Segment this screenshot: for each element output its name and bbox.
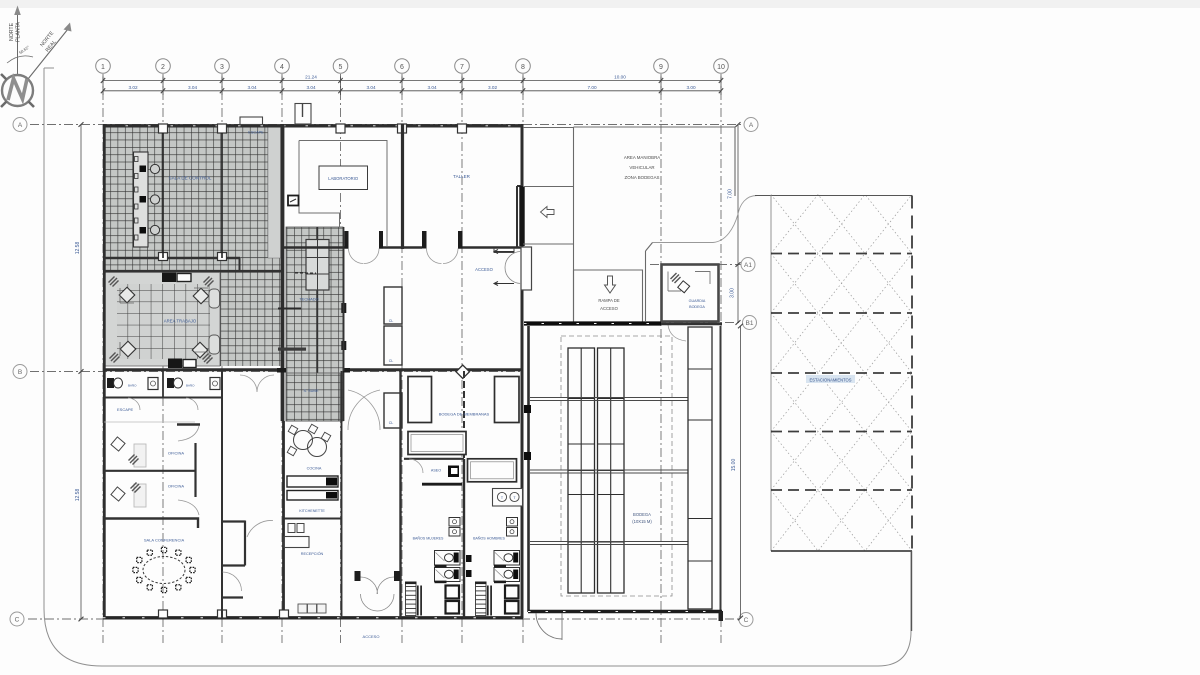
- svg-text:BODEGA: BODEGA: [633, 512, 651, 517]
- svg-text:ASEO: ASEO: [431, 469, 441, 473]
- svg-text:RECEPCIÓN: RECEPCIÓN: [301, 551, 324, 556]
- svg-text:NORTE: NORTE: [9, 22, 15, 41]
- svg-text:5: 5: [339, 64, 343, 71]
- svg-text:ESCAPE: ESCAPE: [117, 407, 134, 412]
- svg-text:3.04: 3.04: [306, 85, 316, 90]
- svg-text:CL: CL: [389, 319, 394, 323]
- svg-text:12.58: 12.58: [75, 242, 81, 255]
- svg-text:3.04: 3.04: [188, 85, 198, 90]
- svg-text:ESTACIONAMIENTOS: ESTACIONAMIENTOS: [810, 377, 852, 382]
- svg-text:BAÑO: BAÑO: [186, 383, 195, 388]
- svg-text:S. SUBE: S. SUBE: [304, 389, 319, 393]
- svg-text:BAÑO: BAÑO: [128, 383, 137, 388]
- svg-text:LABORATORIO: LABORATORIO: [328, 176, 359, 181]
- svg-text:3.00: 3.00: [686, 85, 696, 90]
- svg-text:COCINA: COCINA: [307, 467, 322, 471]
- svg-text:10.00: 10.00: [614, 75, 626, 80]
- svg-text:3.04: 3.04: [427, 85, 437, 90]
- svg-text:BODEGA DE MEMBRANAS: BODEGA DE MEMBRANAS: [439, 412, 490, 417]
- svg-text:C: C: [15, 616, 20, 623]
- svg-text:15.00: 15.00: [731, 459, 737, 472]
- svg-text:ESCAPE: ESCAPE: [248, 131, 264, 135]
- svg-text:ACCESO: ACCESO: [363, 634, 380, 639]
- svg-text:RAMPA DE: RAMPA DE: [598, 298, 620, 303]
- svg-text:AREA TRABAJO: AREA TRABAJO: [164, 319, 197, 324]
- svg-text:ACCESO: ACCESO: [475, 267, 493, 272]
- svg-text:GUARDIA: GUARDIA: [689, 299, 706, 303]
- svg-text:B: B: [18, 369, 22, 376]
- svg-text:TALLER: TALLER: [453, 174, 470, 179]
- svg-text:OFICINA: OFICINA: [168, 451, 185, 456]
- svg-text:3.02: 3.02: [488, 85, 498, 90]
- svg-text:VEHICULAR: VEHICULAR: [629, 165, 654, 170]
- svg-text:3.04: 3.04: [247, 85, 257, 90]
- svg-text:1: 1: [101, 64, 105, 71]
- svg-text:7.00: 7.00: [728, 189, 734, 199]
- svg-text:10: 10: [717, 64, 725, 71]
- svg-text:A: A: [18, 122, 23, 129]
- svg-text:BAÑOS MUJERES: BAÑOS MUJERES: [413, 536, 444, 541]
- svg-text:ZONA BODEGAS: ZONA BODEGAS: [625, 175, 660, 180]
- svg-text:SALA CONFERENCIA: SALA CONFERENCIA: [144, 538, 185, 543]
- svg-text:KITCHENETTE: KITCHENETTE: [299, 509, 325, 513]
- svg-text:BAÑOS HOMBRES: BAÑOS HOMBRES: [473, 536, 505, 541]
- svg-text:7.00: 7.00: [587, 85, 597, 90]
- svg-text:A: A: [749, 122, 754, 129]
- svg-text:8: 8: [521, 64, 525, 71]
- svg-text:(10X15 M): (10X15 M): [632, 519, 652, 524]
- svg-text:ACCESO: ACCESO: [600, 306, 618, 311]
- svg-text:3.00: 3.00: [730, 288, 736, 298]
- svg-text:6: 6: [400, 64, 404, 71]
- svg-text:3.02: 3.02: [128, 85, 138, 90]
- svg-text:OFICINA: OFICINA: [168, 484, 185, 489]
- svg-text:CL: CL: [389, 359, 394, 363]
- svg-text:BODEGA: BODEGA: [689, 305, 705, 309]
- svg-text:C: C: [744, 617, 749, 624]
- svg-text:12.58: 12.58: [75, 489, 81, 502]
- svg-text:TECHADO: TECHADO: [299, 297, 319, 302]
- svg-text:SALA DE CONTROL: SALA DE CONTROL: [169, 176, 212, 181]
- svg-text:3.04: 3.04: [366, 85, 376, 90]
- svg-text:PLANTA: PLANTA: [16, 22, 22, 42]
- svg-text:B1: B1: [746, 320, 754, 327]
- svg-text:3: 3: [220, 64, 224, 71]
- svg-text:21.24: 21.24: [305, 75, 317, 80]
- svg-text:7: 7: [460, 64, 464, 71]
- svg-text:4: 4: [280, 64, 284, 71]
- svg-text:9: 9: [659, 64, 663, 71]
- svg-text:AREA MANIOBRA: AREA MANIOBRA: [624, 155, 660, 160]
- svg-text:A1: A1: [744, 262, 752, 269]
- svg-text:2: 2: [161, 64, 165, 71]
- svg-text:CL: CL: [389, 421, 394, 425]
